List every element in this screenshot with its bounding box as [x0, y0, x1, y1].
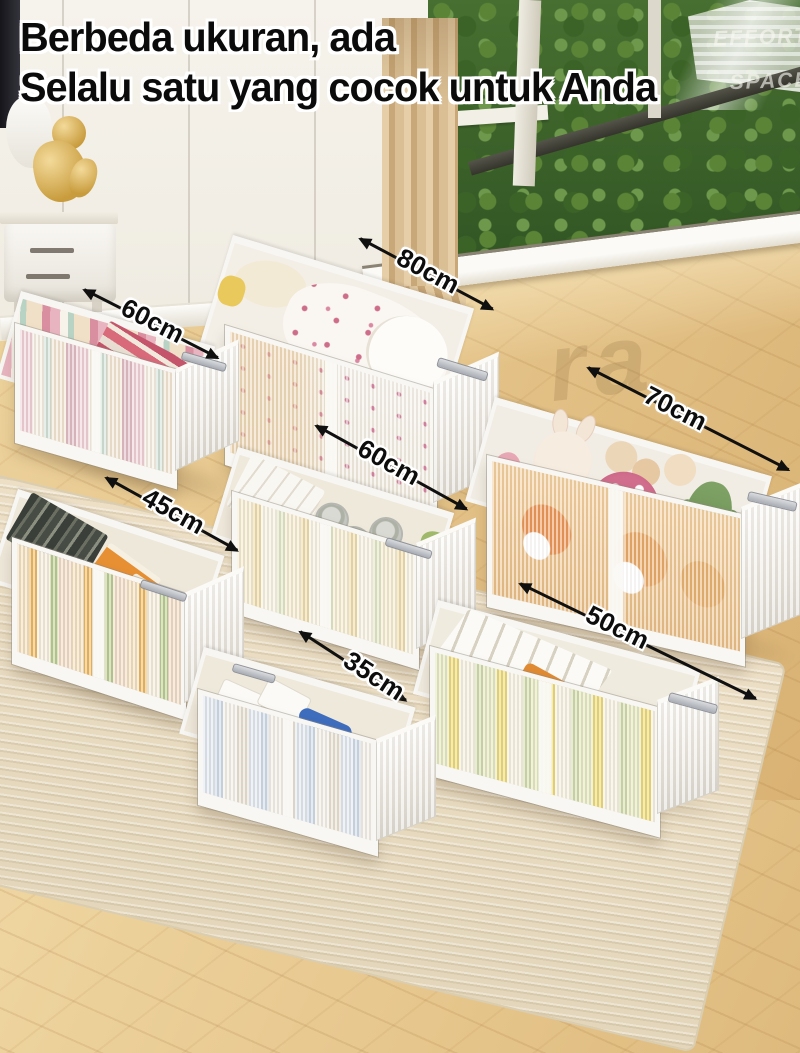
drawer-slot: [30, 248, 74, 253]
headline-line1: Berbeda ukuran, ada: [20, 12, 656, 62]
corner-watermark-line1: EFFORT: [713, 14, 800, 61]
headline-line2: Selalu satu yang cocok untuk Anda: [20, 62, 656, 112]
corner-watermark-line2: SPACE: [714, 58, 800, 105]
storage-box-towels: [198, 645, 440, 803]
nightstand-top: [0, 212, 118, 224]
drawer-slot: [26, 274, 70, 279]
storage-box-snack-packages: [430, 598, 728, 803]
headline: Berbeda ukuran, ada Selalu satu yang coc…: [20, 12, 656, 112]
corner-watermark: EFFORT SPACE: [713, 14, 800, 105]
scene: { "title": { "line1": "Berbeda ukuran, a…: [0, 0, 800, 800]
plush-ball: [660, 450, 700, 490]
